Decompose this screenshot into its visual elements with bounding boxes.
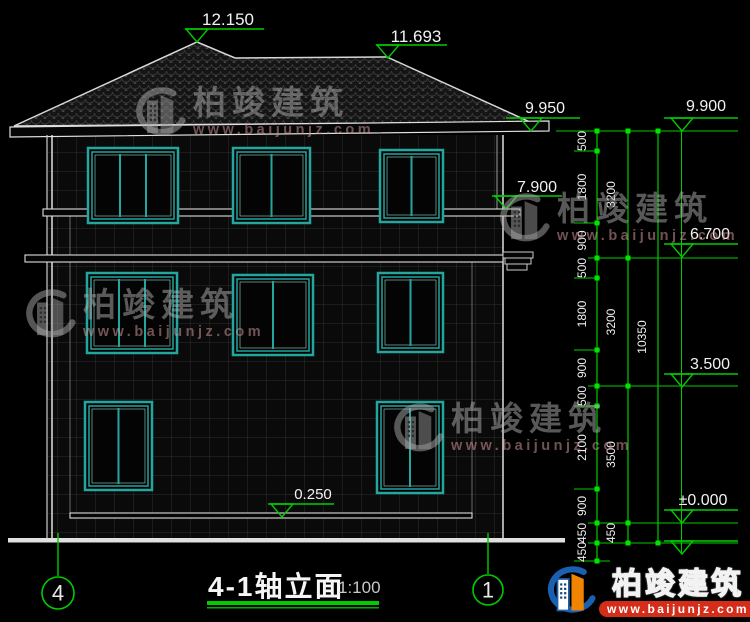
dim-tick [626, 541, 631, 546]
dim-tick [595, 404, 600, 409]
axis-number: 1 [482, 578, 494, 603]
elevation-value: ±0.000 [679, 492, 728, 509]
dim-label: 2100 [575, 434, 589, 461]
dim-tick [595, 559, 600, 564]
brand-logo: 柏竣建筑 www.baijunjz.com [540, 565, 750, 621]
elevation-value: 11.693 [391, 27, 442, 46]
elevation-marker-3.500: 3.500 [664, 356, 738, 387]
dim-label: 450 [575, 523, 589, 543]
elevation-marker-triangle [186, 29, 208, 42]
window [378, 273, 443, 352]
dim-label: 500 [575, 386, 589, 406]
dim-label: 10350 [635, 320, 649, 354]
dim-tick [595, 487, 600, 492]
window-glass [95, 155, 171, 216]
dim-tick [595, 256, 600, 261]
dim-tick [595, 129, 600, 134]
dim-label: 3200 [604, 181, 618, 208]
elevation-marker-12.150: 12.150 [185, 10, 264, 42]
elevation-value: 6.700 [690, 226, 730, 243]
hip-roof [14, 42, 530, 126]
dim-tick [626, 384, 631, 389]
dim-tick [626, 129, 631, 134]
window [380, 150, 443, 222]
elevation-value: 9.950 [525, 100, 565, 117]
elevation-value: 0.250 [294, 486, 332, 503]
dim-tick [595, 276, 600, 281]
elevation-value: 12.150 [202, 10, 254, 29]
corbel-step-1 [503, 252, 533, 258]
dim-label: 3200 [604, 308, 618, 335]
elevation-marker-triangle [377, 45, 399, 58]
dim-tick [656, 129, 661, 134]
corbel-step-3 [507, 264, 527, 270]
ground-line [8, 538, 565, 543]
elevation-marker-11.693: 11.693 [376, 27, 447, 58]
window [87, 273, 177, 353]
title-block: 4-1轴立面 1:100 [207, 570, 381, 609]
window [233, 275, 313, 355]
dim-tick [656, 541, 661, 546]
axis-bubble-4: 4 [42, 533, 74, 609]
dim-label: 900 [575, 496, 589, 516]
dim-label: 450 [575, 542, 589, 562]
window [377, 402, 443, 493]
drawing-title: 4-1轴立面 [208, 570, 344, 602]
brand-logo-url: www.baijunjz.com [599, 601, 750, 617]
dim-label: 500 [575, 131, 589, 151]
drawing-scale: 1:100 [338, 578, 381, 597]
window [233, 148, 310, 223]
dim-tick [626, 521, 631, 526]
elevation-value: 3.500 [690, 356, 730, 373]
elevation-marker-triangle [671, 118, 693, 131]
dim-label: 450 [604, 523, 618, 543]
dim-label: 1800 [575, 300, 589, 327]
window-glass [94, 280, 170, 346]
brand-logo-icon [540, 565, 596, 621]
title-underline-thin [207, 607, 379, 609]
axis-number: 4 [52, 581, 64, 606]
window [88, 148, 178, 223]
elevation-marker-±0.000: ±0.000 [664, 492, 738, 523]
dim-tick [595, 221, 600, 226]
dim-tick [595, 149, 600, 154]
dim-label: 900 [575, 230, 589, 250]
dim-tick [595, 384, 600, 389]
dim-label: 500 [575, 258, 589, 278]
elevation-drawing-canvas: 5001800900500180090050021009004504503200… [0, 0, 750, 622]
dim-label: 3500 [604, 441, 618, 468]
dim-tick [595, 348, 600, 353]
elevation-value: 7.900 [517, 179, 557, 196]
corbel-step-2 [505, 258, 531, 264]
plinth-band [70, 513, 472, 518]
dim-label: 1800 [575, 173, 589, 200]
dim-tick [595, 541, 600, 546]
slab-band-second-floor [25, 255, 503, 262]
dim-tick [595, 521, 600, 526]
brand-logo-text: 柏竣建筑 [612, 569, 744, 601]
dim-label: 900 [575, 358, 589, 378]
elevation-marker-6.700: 6.700 [664, 226, 738, 257]
title-underline-thick [207, 601, 379, 605]
dim-tick [626, 256, 631, 261]
elevation-marker-9.900: 9.900 [664, 98, 738, 131]
cad-elevation-screenshot: 5001800900500180090050021009004504503200… [0, 0, 750, 622]
axis-bubble-1: 1 [473, 533, 503, 605]
window [85, 402, 152, 490]
elevation-value: 9.900 [686, 98, 726, 115]
